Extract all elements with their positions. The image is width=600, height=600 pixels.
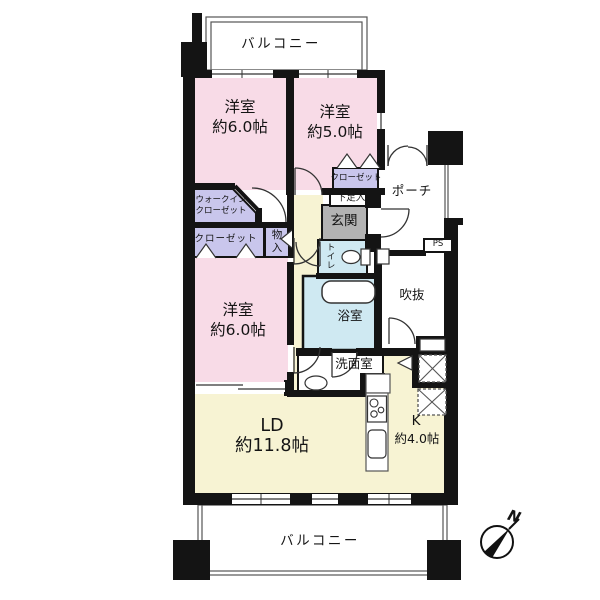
- living-dining-size: 約11.8帖: [235, 436, 309, 456]
- shoe-cabinet-label: 下足入: [337, 194, 366, 205]
- wall: [183, 222, 293, 227]
- wall-void-left: [374, 250, 382, 354]
- storage-label-2: 入: [272, 242, 283, 254]
- pillar-top-right: [428, 131, 463, 165]
- bedroom-top-right-size: 約5.0帖: [307, 124, 363, 142]
- meter-box-icon: [419, 355, 446, 382]
- balcony-bottom-label: バルコニー: [280, 534, 360, 550]
- window-bedroom-right-side: [377, 113, 385, 129]
- pipe-space-label: PS: [433, 240, 444, 250]
- toilet-label-3: レ: [327, 262, 336, 272]
- kitchen-sink-icon: [368, 430, 386, 458]
- bedroom-top-left-name: 洋室: [224, 99, 255, 117]
- toilet-icon: [342, 249, 370, 265]
- floor-plan: バルコニー 洋室 約6.0帖 洋室 約5.0帖 ウォークイン クローゼット クロ…: [0, 0, 600, 600]
- window-top-1: [212, 70, 273, 78]
- washroom-label: 洗面室: [335, 357, 373, 371]
- bathtub-icon: [322, 281, 375, 303]
- wall-left: [183, 70, 195, 505]
- wall: [286, 188, 294, 195]
- window-bottom-1: [232, 494, 290, 504]
- sliding-door-bedroom-ld: [195, 382, 285, 392]
- wall-bath-wash-left: [296, 348, 332, 356]
- wall: [183, 183, 235, 189]
- door-entrance: [381, 209, 409, 237]
- bedroom-left-name: 洋室: [222, 302, 253, 320]
- storage-label-1: 物: [272, 229, 283, 241]
- closet-left-label: クローゼット: [194, 235, 257, 246]
- wall-bedroom-divider: [286, 70, 294, 192]
- wall: [284, 380, 294, 396]
- walk-in-closet-label-2: クローゼット: [195, 207, 246, 217]
- wall-hall-left-mid: [287, 262, 294, 345]
- bedroom-top-right-name: 洋室: [319, 104, 350, 122]
- pillar-bottom-left: [173, 540, 210, 580]
- stove-icon: [368, 396, 387, 422]
- washbasin-icon: [305, 376, 327, 390]
- kitchen-size: 約4.0帖: [395, 432, 440, 446]
- void-label: 吹抜: [399, 288, 424, 302]
- bedroom-top-left-size: 約6.0帖: [212, 119, 268, 137]
- wall-opening-box: [420, 339, 445, 351]
- porch-label: ポーチ: [392, 184, 433, 198]
- pillar-bottom-right: [427, 540, 461, 580]
- living-dining-name: LD: [260, 416, 283, 436]
- entrance-label: 玄関: [331, 214, 358, 230]
- window-bottom-3: [368, 494, 411, 504]
- wall: [192, 13, 202, 44]
- wall-entrance-right-upper: [365, 190, 381, 208]
- closet-top-right-label: クローゼット: [330, 174, 381, 184]
- duct-box: [377, 249, 389, 264]
- wall-meter-bottom: [412, 382, 448, 388]
- balcony-top-label: バルコニー: [241, 37, 321, 53]
- refrigerator-space-icon: [418, 389, 446, 415]
- window-bottom-2: [312, 494, 338, 504]
- kitchen-counter: [366, 374, 390, 471]
- porch-gate: [388, 145, 427, 166]
- bedroom-left-size: 約6.0帖: [210, 322, 266, 340]
- counter-box: [366, 374, 390, 393]
- walk-in-closet-label-1: ウォークイン: [195, 196, 246, 206]
- bathroom-label: 浴室: [337, 309, 362, 323]
- kitchen-name: K: [412, 414, 421, 430]
- wall-toilet-bath: [316, 273, 378, 279]
- window-top-2: [299, 70, 357, 78]
